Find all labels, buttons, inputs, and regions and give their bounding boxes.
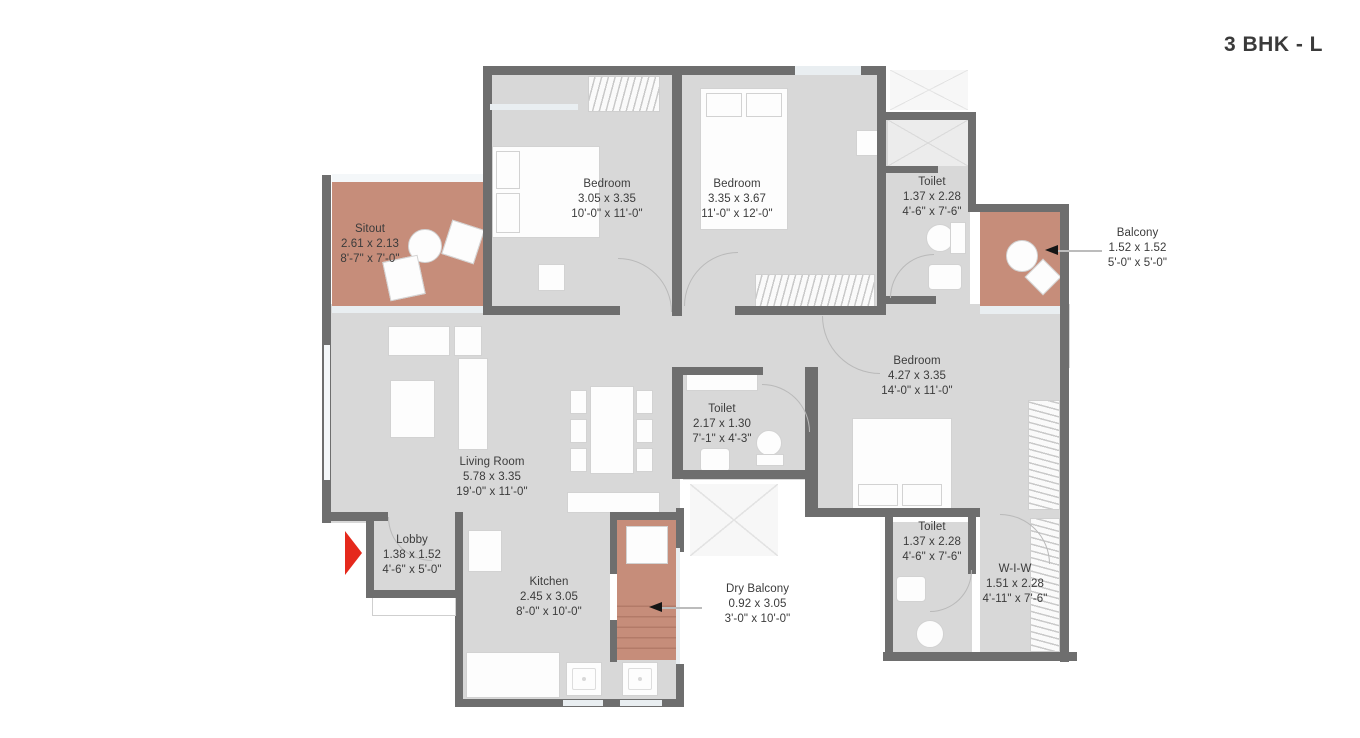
room-label-wiw: W-I-W 1.51 x 2.28 4'-11" x 7'-6" [950, 562, 1080, 608]
wall-segment [886, 112, 976, 120]
room-dim-imperial: 10'-0" x 11'-0" [537, 207, 677, 222]
wall-segment [610, 620, 617, 662]
room-label-sitout: Sitout 2.61 x 2.13 8'-7" x 7'-0" [305, 222, 435, 268]
wardrobe-bedroom-3 [1028, 400, 1060, 510]
room-label-balcony: Balcony 1.52 x 1.52 5'-0" x 5'-0" [1080, 226, 1195, 272]
plan-title: 3 BHK - L [1224, 33, 1323, 57]
room-name: W-I-W [950, 562, 1080, 577]
washbasin-toilet-bottom [896, 576, 926, 602]
pillow [902, 484, 942, 506]
room-dim-imperial: 19'-0" x 11'-0" [422, 485, 562, 500]
room-dim-metric: 1.38 x 1.52 [357, 548, 467, 563]
wall-segment [483, 306, 620, 315]
window-living-left [324, 345, 330, 480]
room-dim-imperial: 3'-0" x 10'-0" [695, 612, 820, 627]
room-name: Balcony [1080, 226, 1195, 241]
room-dim-imperial: 4'-6" x 7'-6" [872, 205, 992, 220]
wall-segment [886, 166, 938, 173]
room-name: Bedroom [847, 354, 987, 369]
duct-shaft-mid [690, 484, 778, 556]
sofa [388, 326, 450, 356]
dining-table [590, 386, 634, 474]
wall-segment [672, 367, 763, 375]
wall-segment [735, 306, 886, 315]
sideboard [567, 492, 660, 513]
sofa [390, 380, 435, 438]
wardrobe-bedroom-1 [588, 76, 660, 112]
pillow [858, 484, 898, 506]
room-dim-metric: 3.35 x 3.67 [667, 192, 807, 207]
window-balcony-bottom [980, 306, 1060, 314]
pillow [706, 93, 742, 117]
room-dim-imperial: 14'-0" x 11'-0" [847, 384, 987, 399]
entrance-landing [372, 598, 456, 616]
fridge [468, 530, 502, 572]
shower-area [888, 120, 968, 166]
dry-balcony-steps [617, 602, 676, 658]
room-dim-metric: 0.92 x 3.05 [695, 597, 820, 612]
washing-machine [626, 526, 668, 564]
room-dim-imperial: 11'-0" x 12'-0" [667, 207, 807, 222]
dining-chair [570, 390, 587, 414]
room-label-lobby: Lobby 1.38 x 1.52 4'-6" x 5'-0" [357, 533, 467, 579]
room-name: Lobby [357, 533, 467, 548]
room-dim-imperial: 8'-0" x 10'-0" [484, 605, 614, 620]
window-bedroom-1 [490, 104, 578, 110]
room-dim-metric: 2.61 x 2.13 [305, 237, 435, 252]
kitchen-sink [566, 662, 602, 696]
sofa-single [454, 326, 482, 356]
room-label-bedroom-1: Bedroom 3.05 x 3.35 10'-0" x 11'-0" [537, 177, 677, 223]
room-dim-metric: 4.27 x 3.35 [847, 369, 987, 384]
leader-arrow-balcony [1045, 245, 1058, 255]
wc-toilet-bottom [916, 620, 944, 648]
room-dim-metric: 1.37 x 2.28 [872, 190, 992, 205]
room-name: Toilet [872, 520, 992, 535]
room-name: Sitout [305, 222, 435, 237]
room-dim-metric: 2.45 x 3.05 [484, 590, 614, 605]
wall-segment [883, 652, 1077, 661]
room-label-living-room: Living Room 5.78 x 3.35 19'-0" x 11'-0" [422, 455, 562, 501]
sink-drain [582, 677, 586, 681]
wall-segment [676, 508, 684, 552]
wc-tank [756, 454, 784, 466]
dining-chair [636, 419, 653, 443]
room-dim-metric: 1.51 x 2.28 [950, 577, 1080, 592]
room-label-kitchen: Kitchen 2.45 x 3.05 8'-0" x 10'-0" [484, 575, 614, 621]
wall-segment [330, 512, 388, 521]
floor-plan-canvas: Sitout 2.61 x 2.13 8'-7" x 7'-0" Bedroom… [0, 0, 1360, 738]
window-sitout-bottom [332, 306, 483, 313]
wall-segment [810, 508, 980, 517]
dining-chair [636, 448, 653, 472]
room-label-bedroom-3: Bedroom 4.27 x 3.35 14'-0" x 11'-0" [847, 354, 987, 400]
sink-drain [638, 677, 642, 681]
dining-chair [570, 448, 587, 472]
room-name: Dry Balcony [695, 582, 820, 597]
wall-segment [672, 470, 812, 479]
wall-segment [610, 512, 684, 520]
room-label-toilet-mid: Toilet 2.17 x 1.30 7'-1" x 4'-3" [662, 402, 782, 448]
kitchen-counter [466, 652, 560, 698]
dining-chair [636, 390, 653, 414]
washbasin-toilet-mid [700, 448, 730, 472]
kitchen-sink [622, 662, 658, 696]
wc-tank [950, 222, 966, 254]
wardrobe-bedroom-2 [755, 274, 875, 307]
room-name: Living Room [422, 455, 562, 470]
room-name: Toilet [662, 402, 782, 417]
room-name: Kitchen [484, 575, 614, 590]
window-dry-balcony [676, 548, 680, 664]
wall-segment [366, 590, 460, 598]
room-label-toilet-top: Toilet 1.37 x 2.28 4'-6" x 7'-6" [872, 175, 992, 221]
room-label-toilet-bottom: Toilet 1.37 x 2.28 4'-6" x 7'-6" [872, 520, 992, 566]
window-bedroom-2-top [795, 66, 861, 75]
side-table [538, 264, 565, 291]
room-label-bedroom-2: Bedroom 3.35 x 3.67 11'-0" x 12'-0" [667, 177, 807, 223]
room-dim-metric: 3.05 x 3.35 [537, 192, 677, 207]
pillow [746, 93, 782, 117]
room-label-dry-balcony: Dry Balcony 0.92 x 3.05 3'-0" x 10'-0" [695, 582, 820, 628]
leader-arrow-dry-balcony [649, 602, 662, 612]
wall-segment [483, 66, 795, 75]
room-dim-metric: 1.37 x 2.28 [872, 535, 992, 550]
wall-segment [610, 512, 617, 574]
room-dim-metric: 2.17 x 1.30 [662, 417, 782, 432]
room-dim-imperial: 8'-7" x 7'-0" [305, 252, 435, 267]
room-dim-imperial: 7'-1" x 4'-3" [662, 432, 782, 447]
room-dim-imperial: 4'-11" x 7'-6" [950, 592, 1080, 607]
room-dim-metric: 5.78 x 3.35 [422, 470, 562, 485]
room-dim-imperial: 5'-0" x 5'-0" [1080, 256, 1195, 271]
duct-shaft-top [890, 70, 968, 110]
wall-segment [805, 367, 818, 517]
room-name: Toilet [872, 175, 992, 190]
wall-segment [676, 664, 684, 707]
room-dim-imperial: 4'-6" x 5'-0" [357, 563, 467, 578]
window-kitchen-bottom [563, 700, 603, 706]
dining-chair [570, 419, 587, 443]
pillow [496, 193, 520, 233]
room-dim-metric: 1.52 x 1.52 [1080, 241, 1195, 256]
room-name: Bedroom [667, 177, 807, 192]
window-sitout-top [332, 174, 483, 182]
window-kitchen-bottom [620, 700, 662, 706]
room-name: Bedroom [537, 177, 677, 192]
tv-cabinet [458, 358, 488, 450]
pillow [496, 151, 520, 189]
